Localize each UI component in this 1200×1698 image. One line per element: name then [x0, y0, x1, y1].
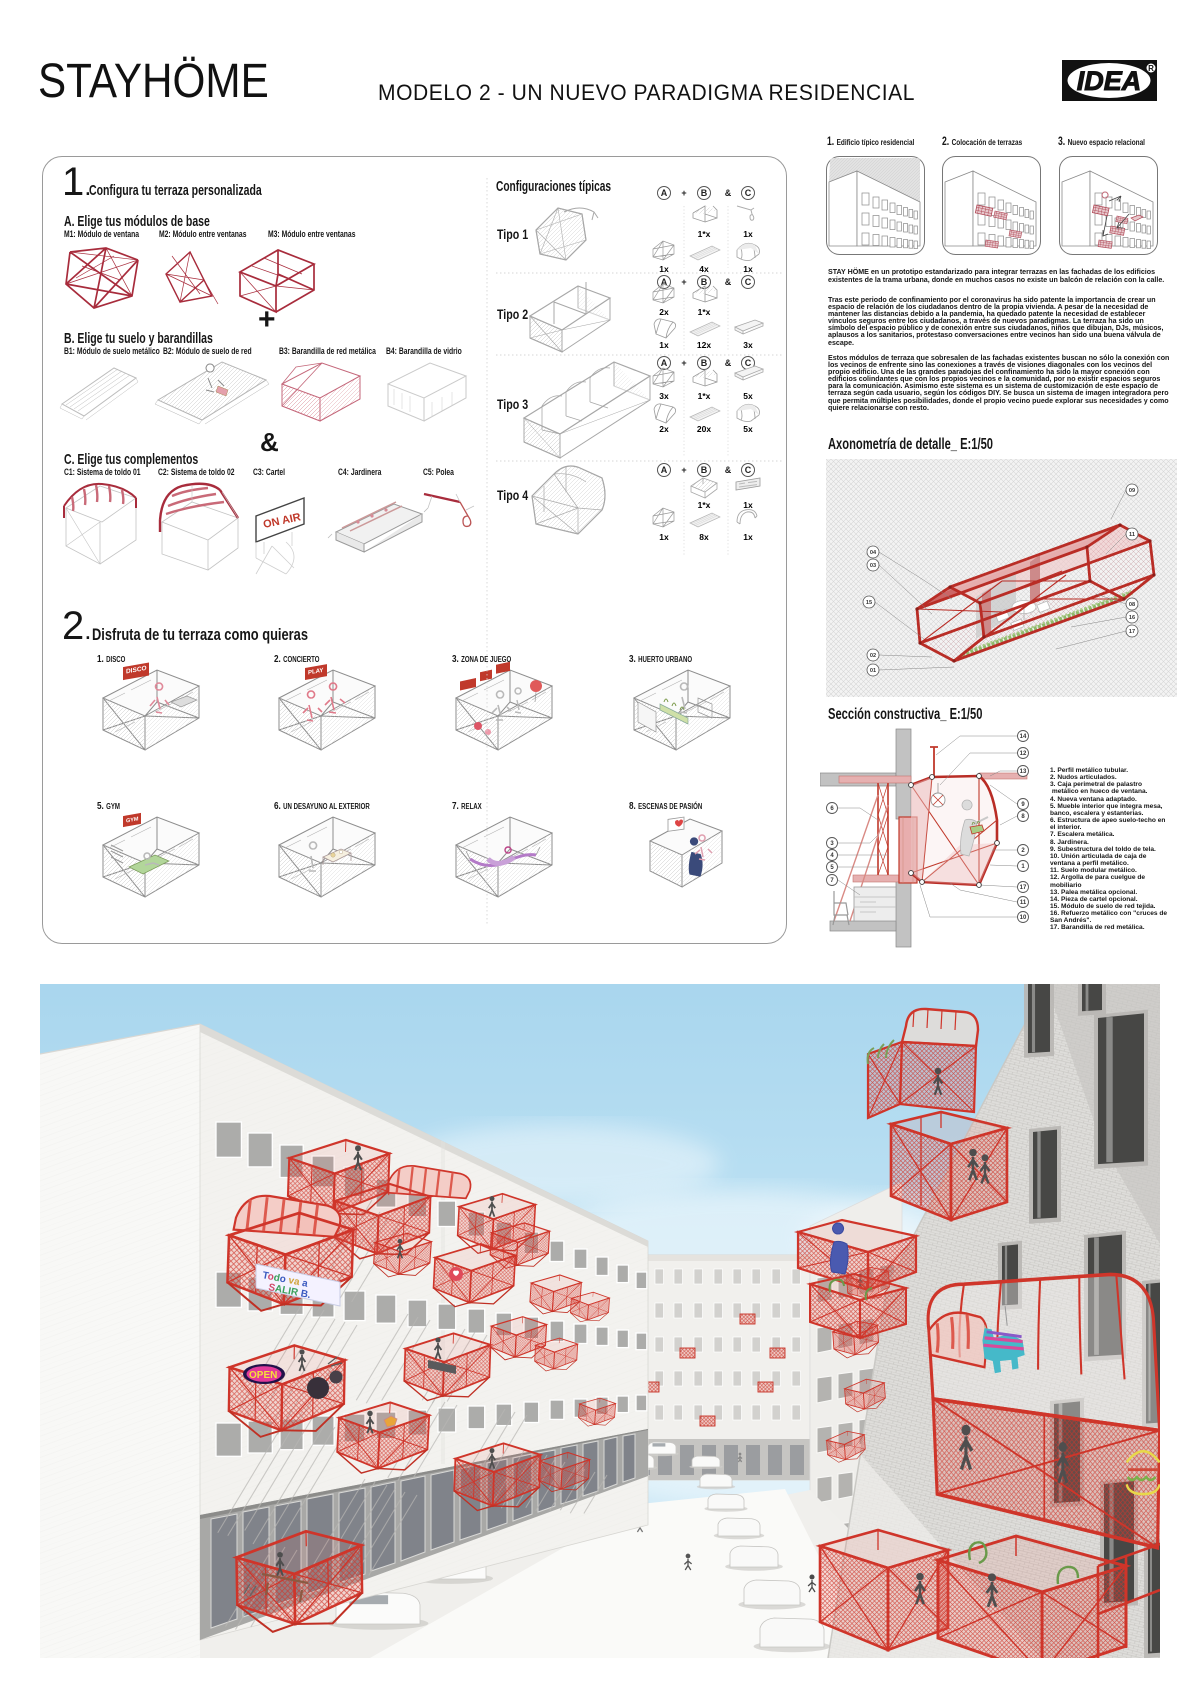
svg-text:12x: 12x — [697, 340, 711, 350]
svg-text:C: C — [745, 465, 752, 475]
svg-text:IDEA: IDEA — [1077, 66, 1142, 96]
svg-text:12: 12 — [1020, 751, 1027, 757]
svg-text:C: C — [745, 277, 752, 287]
svg-text:15: 15 — [866, 600, 872, 606]
svg-text:03: 03 — [870, 563, 876, 569]
svg-text:09: 09 — [1129, 488, 1135, 494]
svg-text:17: 17 — [1129, 629, 1135, 635]
svg-text:1*x: 1*x — [698, 229, 711, 239]
svg-text:+: + — [681, 465, 686, 475]
svg-text:8x: 8x — [699, 532, 709, 542]
svg-text:4x: 4x — [699, 264, 709, 274]
svg-text:C: C — [745, 358, 752, 368]
svg-text:B: B — [701, 465, 708, 475]
svg-text:1*x: 1*x — [698, 500, 711, 510]
svg-text:10: 10 — [1020, 915, 1027, 921]
svg-text:R: R — [1148, 64, 1154, 73]
svg-text:14: 14 — [1020, 734, 1027, 740]
svg-text:1*x: 1*x — [698, 391, 711, 401]
svg-text:+: + — [681, 277, 686, 287]
svg-text:1x: 1x — [743, 229, 753, 239]
svg-text:11: 11 — [1129, 532, 1135, 538]
svg-text:02: 02 — [870, 653, 876, 659]
svg-text:A: A — [661, 358, 668, 368]
svg-text:5x: 5x — [743, 391, 753, 401]
svg-text:1x: 1x — [659, 264, 669, 274]
svg-text:1x: 1x — [743, 500, 753, 510]
svg-text:08: 08 — [1129, 602, 1135, 608]
svg-text:+: + — [681, 358, 686, 368]
svg-text:1x: 1x — [659, 532, 669, 542]
svg-text:B: B — [701, 188, 708, 198]
svg-text:20x: 20x — [697, 424, 711, 434]
svg-text:13: 13 — [1020, 769, 1027, 775]
svg-text:1x: 1x — [743, 532, 753, 542]
svg-text:&: & — [725, 465, 732, 475]
svg-text:1x: 1x — [659, 340, 669, 350]
svg-text:&: & — [725, 277, 732, 287]
svg-text:01: 01 — [870, 668, 876, 674]
svg-text:C: C — [745, 188, 752, 198]
svg-text:1x: 1x — [743, 264, 753, 274]
svg-text:B: B — [701, 277, 708, 287]
svg-text:A: A — [661, 188, 668, 198]
svg-text:2x: 2x — [659, 307, 669, 317]
svg-text:2x: 2x — [659, 424, 669, 434]
svg-text:3x: 3x — [743, 340, 753, 350]
svg-text:B: B — [701, 358, 708, 368]
svg-text:+: + — [681, 188, 686, 198]
svg-text:&: & — [725, 358, 732, 368]
svg-text:OPEN: OPEN — [249, 1370, 277, 1381]
svg-text:1*x: 1*x — [698, 307, 711, 317]
svg-text:04: 04 — [870, 550, 877, 556]
svg-text:11: 11 — [1020, 900, 1027, 906]
svg-text:17: 17 — [1020, 885, 1027, 891]
svg-text:3x: 3x — [659, 391, 669, 401]
svg-text:16: 16 — [1129, 615, 1135, 621]
svg-text:5x: 5x — [743, 424, 753, 434]
svg-text:A: A — [661, 465, 668, 475]
svg-text:&: & — [725, 188, 732, 198]
